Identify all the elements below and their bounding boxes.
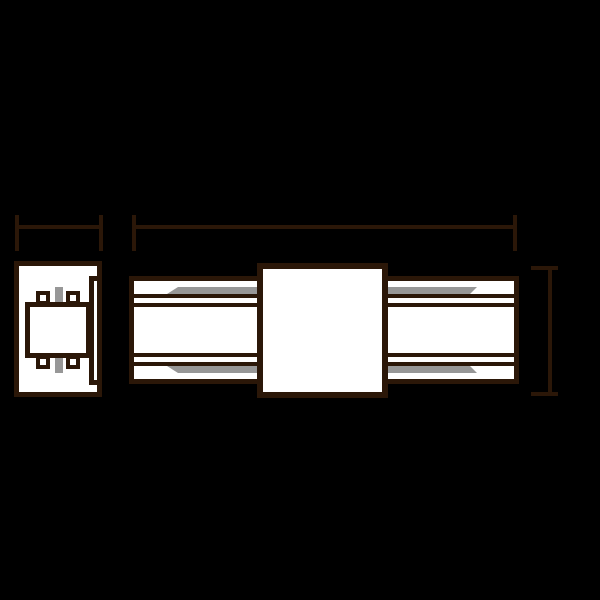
dimension-height-line	[548, 266, 552, 396]
technical-drawing-canvas	[0, 0, 600, 600]
rail-contact-strip-bottom-right	[388, 366, 477, 373]
dimension-height-tick-top	[531, 266, 558, 270]
end-view-contact-top-right	[66, 291, 80, 305]
end-view-contact-bottom-right	[66, 355, 80, 369]
rail-contact-strip-bottom-left	[167, 366, 260, 373]
dimension-width-tick-right	[99, 215, 103, 251]
dimension-width-tick-left	[15, 215, 19, 251]
end-view-contact-bottom-left	[36, 355, 50, 369]
rail-contact-strip-top-left	[167, 287, 260, 294]
dimension-height-tick-bottom	[531, 392, 558, 396]
rail-contact-strip-top-right	[388, 287, 477, 294]
dimension-length-tick-right	[513, 215, 517, 251]
end-view-connector-body	[25, 302, 91, 358]
end-view-contact-top-left	[36, 291, 50, 305]
center-coupler-block	[257, 263, 388, 398]
dimension-width-line	[15, 225, 103, 229]
dimension-length-line	[132, 225, 517, 229]
dimension-length-tick-left	[132, 215, 136, 251]
